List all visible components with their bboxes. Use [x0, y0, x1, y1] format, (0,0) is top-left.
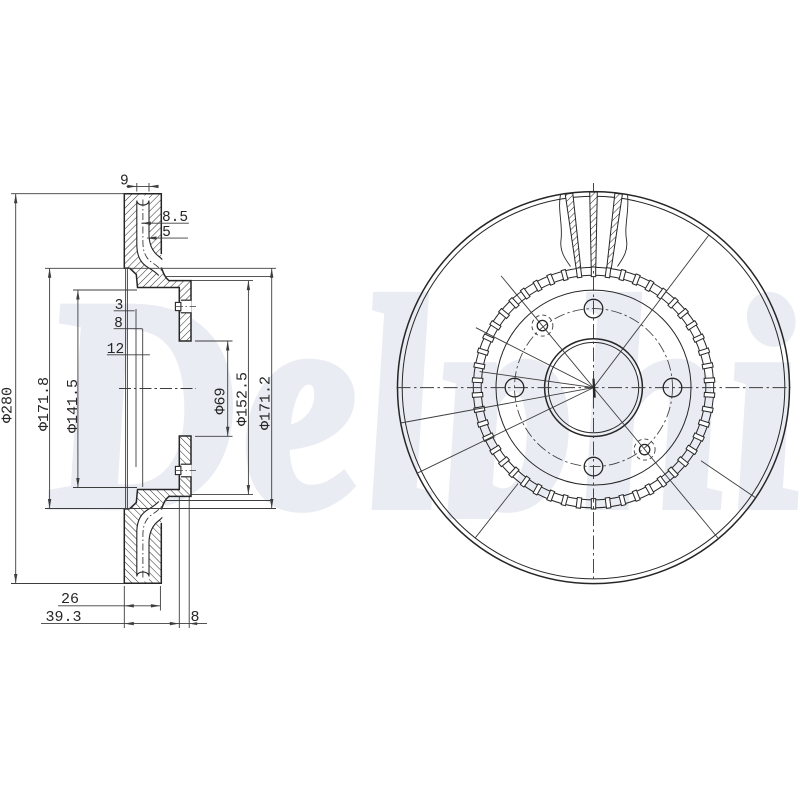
svg-text:8: 8 — [114, 316, 123, 332]
svg-text:Φ171.8: Φ171.8 — [36, 377, 53, 431]
svg-text:9: 9 — [120, 174, 129, 190]
svg-text:39.3: 39.3 — [45, 609, 81, 626]
svg-text:Φ280: Φ280 — [0, 387, 17, 423]
svg-text:8.5: 8.5 — [162, 210, 188, 226]
svg-text:26: 26 — [61, 591, 79, 608]
svg-text:Φ152.5: Φ152.5 — [235, 372, 252, 426]
svg-text:8: 8 — [190, 609, 199, 626]
svg-text:5: 5 — [162, 225, 171, 241]
svg-text:Φ69: Φ69 — [213, 387, 230, 414]
svg-text:Φ141.5: Φ141.5 — [65, 379, 82, 433]
svg-text:3: 3 — [115, 298, 124, 314]
svg-text:12: 12 — [107, 342, 124, 358]
svg-text:Φ171.2: Φ171.2 — [258, 376, 275, 430]
